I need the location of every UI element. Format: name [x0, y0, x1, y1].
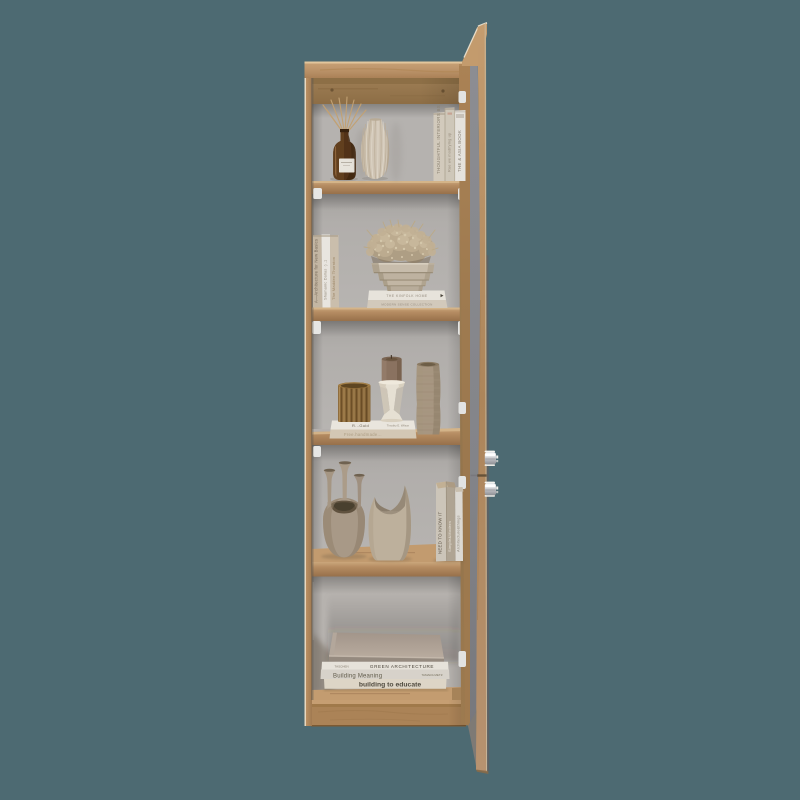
svg-text:NEED TO KNOW IT: NEED TO KNOW IT [438, 512, 443, 554]
svg-text:GREEN ARCHITECTURE: GREEN ARCHITECTURE [370, 664, 434, 669]
svg-text:THE KINFOLK HOME: THE KINFOLK HOME [386, 294, 428, 298]
svg-text:building to educate: building to educate [359, 682, 422, 689]
svg-text:TAMARA METZ: TAMARA METZ [421, 673, 442, 677]
svg-text:MODERN SENSE COLLECTION: MODERN SENSE COLLECTION [381, 303, 432, 307]
svg-text:A—Architecture for New Basics: A—Architecture for New Basics [314, 239, 319, 303]
svg-text:The Madden Thornton: The Madden Thornton [331, 257, 336, 300]
svg-text:R...Guid: R...Guid [352, 423, 369, 428]
svg-text:THE & ASIA BOOK: THE & ASIA BOOK [457, 130, 462, 172]
svg-text:Architecture&things: Architecture&things [456, 515, 460, 552]
svg-text:Rue we modifying up: Rue we modifying up [447, 133, 451, 172]
svg-text:THOUGHTFUL INTERIORS BS: THOUGHTFUL INTERIORS BS [436, 105, 441, 174]
svg-text:Shamanic Dallas ·) .1: Shamanic Dallas ·) .1 [323, 260, 327, 301]
svg-text:TASCHEN: TASCHEN [335, 665, 349, 669]
svg-text:Timothy E. Wilson: Timothy E. Wilson [387, 424, 410, 428]
svg-text:Free.handmade...: Free.handmade... [344, 432, 382, 437]
svg-text:Simple&Modern: Simple&Modern [447, 521, 452, 552]
svg-text:Building Meaning: Building Meaning [333, 673, 382, 679]
